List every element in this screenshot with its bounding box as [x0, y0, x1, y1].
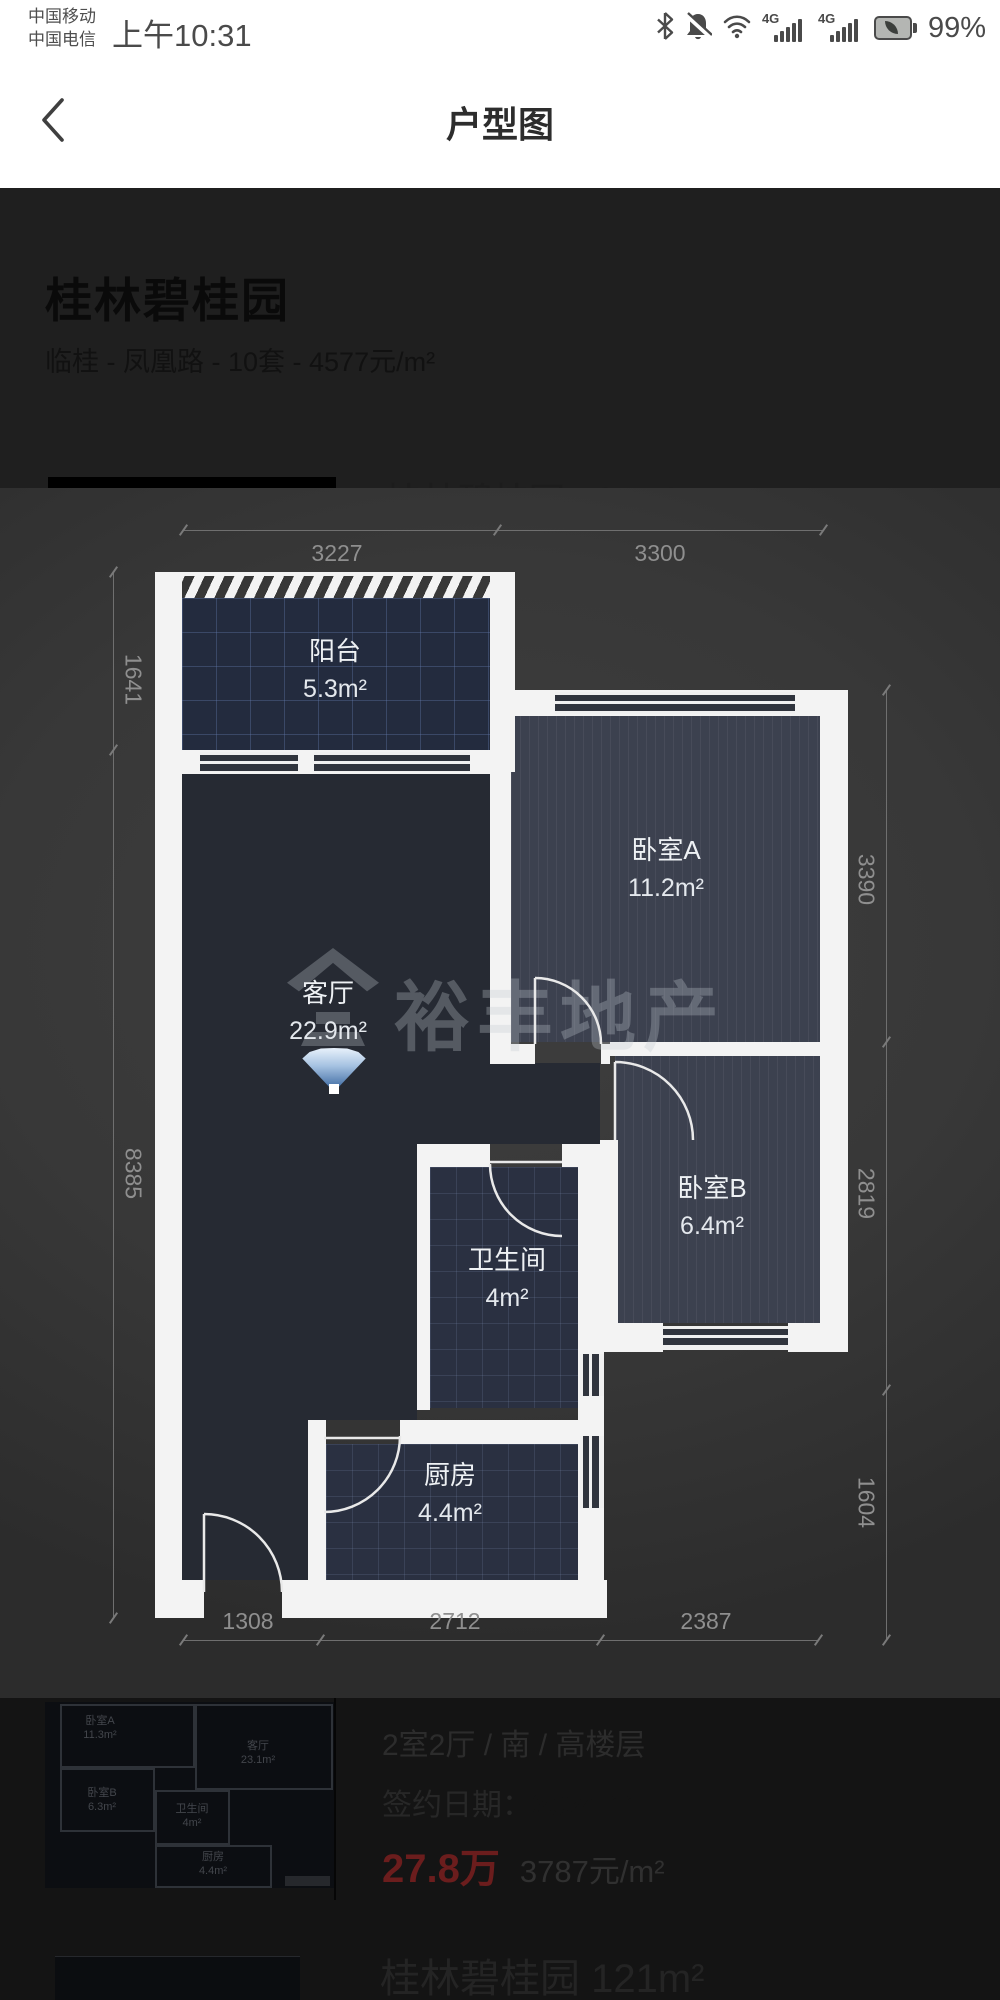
dimmed-listing-section: 卧室A11.3m² 客厅23.1m² 卧室B6.3m² 卫生间4m² 厨房4.4… — [0, 1698, 1000, 2000]
room-label-living: 客厅22.9m² — [238, 974, 418, 1050]
dim-top-2: 3300 — [605, 540, 715, 567]
listing-price-row: 27.8万 3787元/m² — [382, 1836, 665, 1894]
nav-bar: 户型图 — [0, 56, 1000, 188]
next-listing-title[interactable]: 桂林碧桂园 121m² — [380, 1946, 705, 2000]
room-label-bedroom-b: 卧室B6.4m² — [622, 1169, 802, 1245]
room-label-bathroom: 卫生间4m² — [417, 1241, 597, 1317]
dim-line-right — [886, 690, 887, 1640]
dim-bottom-3: 2387 — [651, 1608, 761, 1635]
community-name: 桂林碧桂园 — [45, 262, 290, 331]
mini-room-bedroom-b: 卧室B6.3m² — [57, 1786, 147, 1814]
clock: 上午10:31 — [112, 10, 252, 55]
mini-room-bathroom: 卫生间4m² — [147, 1802, 237, 1830]
mini-room-living: 客厅23.1m² — [213, 1739, 303, 1767]
dim-right-2: 2819 — [853, 1139, 880, 1249]
carrier-labels: 中国移动 中国电信 — [28, 5, 96, 51]
sign-date-value: 2024-11 — [532, 1789, 640, 1822]
listing-sign-date: 签约日期：2024-11 — [382, 1780, 640, 1824]
room-label-kitchen: 厨房4.4m² — [360, 1456, 540, 1532]
sign-date-label: 签约日期： — [382, 1789, 532, 1822]
dim-line-top — [183, 530, 823, 531]
floor-plan-image[interactable]: 裕丰地产 3227 3300 1641 8385 3390 2819 1604 … — [0, 488, 1000, 1698]
camera-dot-icon — [329, 1084, 339, 1094]
signal-bars-icon — [830, 19, 858, 42]
dim-bottom-2: 2712 — [400, 1608, 510, 1635]
dim-right-1: 3390 — [853, 825, 880, 935]
signal-sim2: 4G — [818, 11, 864, 45]
door-living-hall — [535, 978, 601, 1044]
mini-watermark-chip — [285, 1876, 330, 1886]
mini-room-kitchen: 厨房4.4m² — [168, 1850, 258, 1878]
listing-thumbnail[interactable]: 卧室A11.3m² 客厅23.1m² 卧室B6.3m² 卫生间4m² 厨房4.4… — [45, 1702, 335, 1888]
mini-room-bedroom-a: 卧室A11.3m² — [55, 1714, 145, 1742]
dim-left-2: 8385 — [120, 1119, 147, 1229]
dim-line-bottom — [183, 1640, 818, 1641]
room-label-bedroom-a: 卧室A11.2m² — [576, 831, 756, 907]
room-label-balcony: 阳台5.3m² — [245, 632, 425, 708]
dimmed-page-header: 桂林碧桂园 临桂 - 凤凰路 - 10套 - 4577元/m² 桂林碧桂园 12… — [0, 188, 1000, 488]
status-bar: 中国移动 中国电信 上午10:31 4G 4G — [0, 0, 1000, 56]
dim-bottom-1: 1308 — [193, 1608, 303, 1635]
total-price: 27.8万 — [382, 1836, 500, 1894]
listing-specs: 2室2厅 / 南 / 高楼层 — [382, 1720, 645, 1764]
unit-price: 3787元/m² — [520, 1846, 665, 1891]
dim-left-1: 1641 — [120, 625, 147, 735]
dim-line-left — [113, 572, 114, 1618]
dim-top-1: 3227 — [282, 540, 392, 567]
dim-right-3: 1604 — [853, 1448, 880, 1558]
door-entrance — [204, 1514, 282, 1592]
battery-percent: 99% — [928, 12, 986, 45]
battery-icon — [874, 16, 918, 40]
community-summary: 临桂 - 凤凰路 - 10套 - 4577元/m² — [45, 340, 435, 379]
phone-screen: 中国移动 中国电信 上午10:31 4G 4G — [0, 0, 1000, 2000]
next-listing-thumbnail[interactable] — [55, 1956, 300, 2000]
signal-bars-icon — [774, 19, 802, 42]
wifi-icon — [722, 13, 752, 44]
page-title: 户型图 — [0, 96, 1000, 148]
carrier-1: 中国移动 — [28, 5, 96, 28]
bluetooth-icon — [656, 11, 674, 46]
row-divider — [334, 1698, 336, 1900]
notifications-muted-icon — [684, 11, 712, 46]
carrier-2: 中国电信 — [28, 28, 96, 51]
status-icons: 4G 4G 99% — [656, 0, 986, 56]
door-bedroom-b — [615, 1062, 693, 1140]
signal-sim1: 4G — [762, 11, 808, 45]
door-bathroom — [490, 1162, 562, 1236]
